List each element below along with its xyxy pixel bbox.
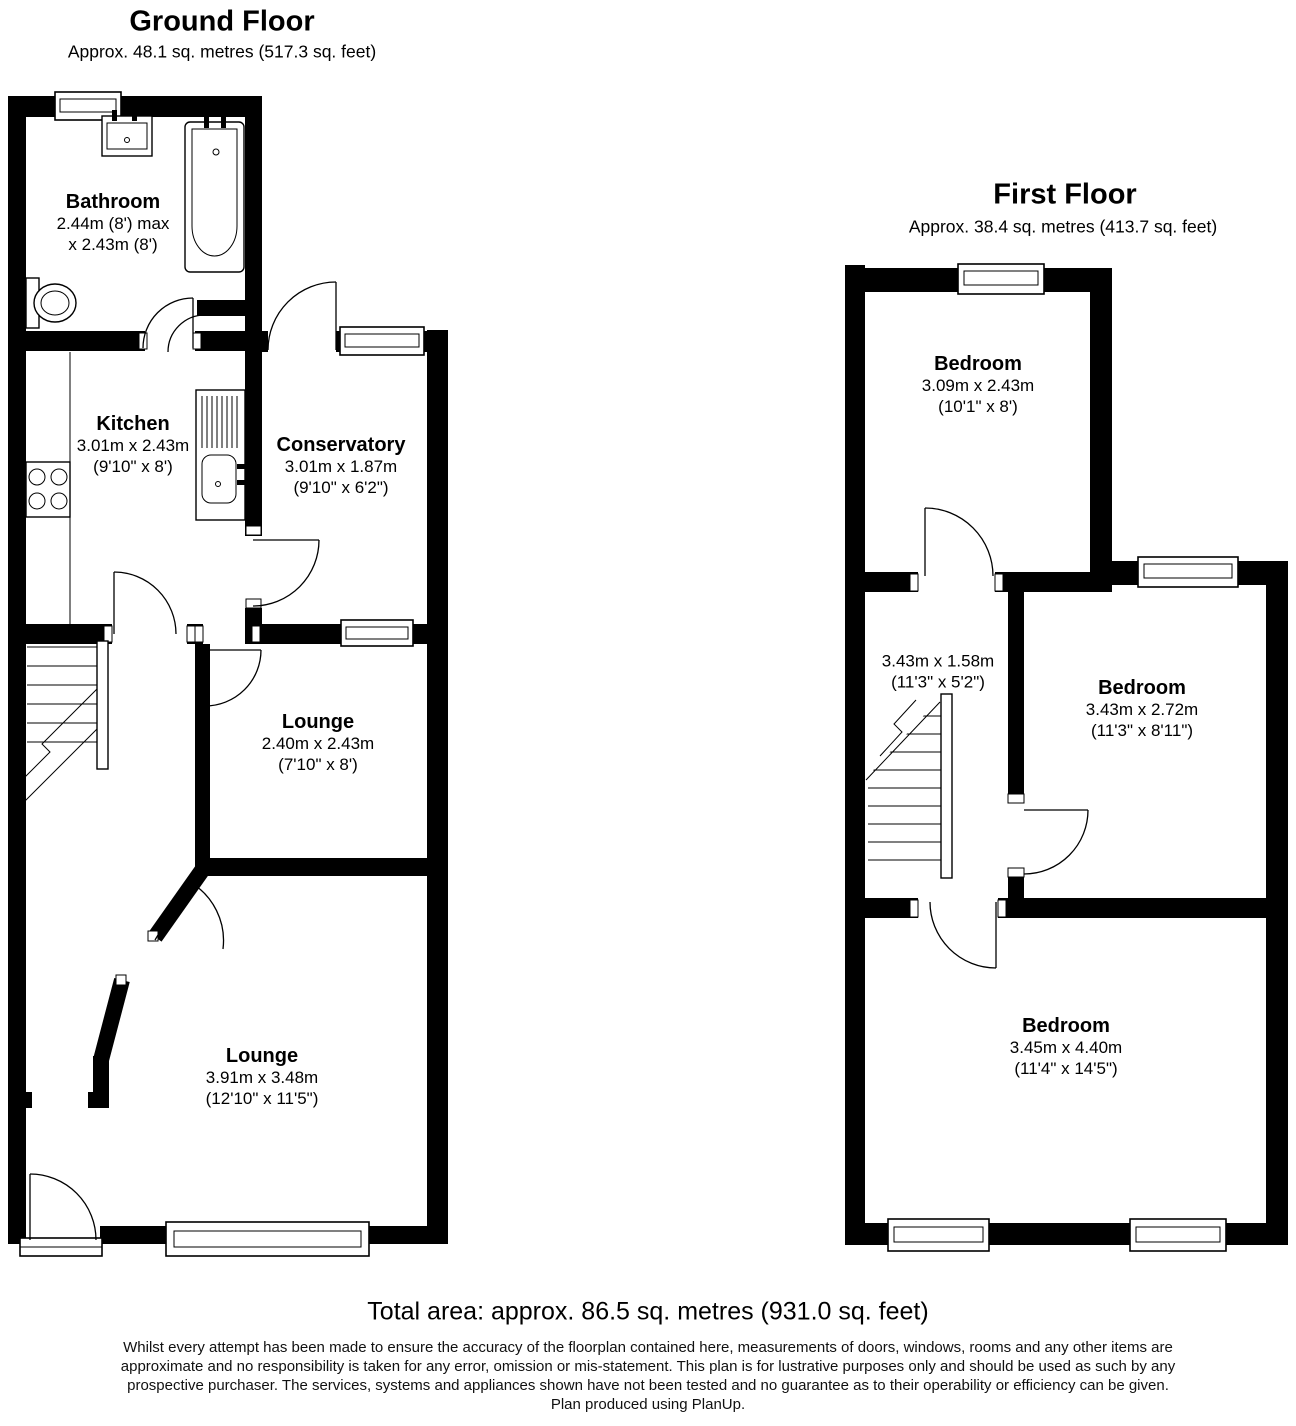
bedroom-back-window-right-icon: [1130, 1219, 1226, 1251]
ff-stairs: [866, 694, 952, 878]
room-name: Bedroom: [1086, 676, 1198, 700]
bedroom-middle-window-icon: [1138, 557, 1238, 587]
floorplan-page: Ground Floor Approx. 48.1 sq. metres (51…: [0, 0, 1296, 1426]
entrance-threshold: [20, 1238, 102, 1256]
room-label-landing: 3.43m x 1.58m (11'3" x 5'2"): [882, 651, 994, 692]
bath-icon: [185, 116, 244, 272]
lounge-window-icon: [166, 1222, 369, 1256]
room-name: Bedroom: [922, 352, 1034, 376]
ground-floor-subtitle: Approx. 48.1 sq. metres (517.3 sq. feet): [68, 42, 376, 63]
room-name: Lounge: [206, 1044, 319, 1068]
bedroom-back-window-left-icon: [888, 1219, 989, 1251]
kitchen-sink-icon: [196, 390, 245, 520]
room-name: Bedroom: [1010, 1014, 1122, 1038]
hob-icon: [26, 352, 70, 624]
kitchen-door-icon: [114, 572, 176, 634]
first-floor-plan: [845, 264, 1288, 1251]
room-label-bathroom: Bathroom 2.44m (8') max x 2.43m (8'): [57, 190, 170, 256]
bedroom-middle-door-icon: [1024, 810, 1088, 874]
room-name: Conservatory: [277, 433, 406, 457]
first-floor-title: First Floor: [993, 179, 1136, 212]
room-name: Bathroom: [57, 190, 170, 214]
disclaimer-text: Whilst every attempt has been made to en…: [0, 1338, 1296, 1414]
room-dims-imperial: (7'10" x 8'): [262, 755, 374, 776]
total-area-text: Total area: approx. 86.5 sq. metres (931…: [367, 1298, 928, 1327]
disclaimer-line-1: Whilst every attempt has been made to en…: [0, 1338, 1296, 1357]
room-dims-metric: 3.45m x 4.40m: [1010, 1038, 1122, 1059]
first-floor-subtitle: Approx. 38.4 sq. metres (413.7 sq. feet): [909, 217, 1217, 238]
room-dims-metric: 2.44m (8') max: [57, 214, 170, 235]
room-label-lounge-small: Lounge 2.40m x 2.43m (7'10" x 8'): [262, 710, 374, 776]
room-dims-metric: 3.01m x 1.87m: [277, 457, 406, 478]
room-name: Lounge: [262, 710, 374, 734]
bedroom-front-door-icon: [925, 508, 993, 576]
disclaimer-line-3: prospective purchaser. The services, sys…: [0, 1376, 1296, 1395]
room-dims-imperial: (11'3" x 8'11"): [1086, 721, 1198, 742]
room-label-bedroom-front: Bedroom 3.09m x 2.43m (10'1" x 8'): [922, 352, 1034, 418]
conservatory-outer-door-icon: [268, 282, 336, 350]
room-dims-metric: 3.09m x 2.43m: [922, 376, 1034, 397]
kitchen-conservatory-door-icon: [253, 540, 319, 606]
entrance-door-icon: [30, 1174, 96, 1240]
room-dims-metric: 3.01m x 2.43m: [77, 436, 189, 457]
room-dims-imperial: x 2.43m (8'): [57, 235, 170, 256]
room-label-lounge-large: Lounge 3.91m x 3.48m (12'10" x 11'5"): [206, 1044, 319, 1110]
disclaimer-line-4: Plan produced using PlanUp.: [0, 1395, 1296, 1414]
toilet-icon: [26, 278, 76, 328]
ff-walls: [845, 265, 1288, 1245]
room-dims-metric: 3.43m x 2.72m: [1086, 700, 1198, 721]
room-dims-imperial: (9'10" x 8'): [77, 457, 189, 478]
room-label-conservatory: Conservatory 3.01m x 1.87m (9'10" x 6'2"…: [277, 433, 406, 499]
conservatory-top-window-icon: [340, 327, 424, 355]
disclaimer-line-2: approximate and no responsibility is tak…: [0, 1357, 1296, 1376]
room-dims-imperial: (9'10" x 6'2"): [277, 478, 406, 499]
room-dims-imperial: (12'10" x 11'5"): [206, 1089, 319, 1110]
room-dims-metric: 3.43m x 1.58m: [882, 651, 994, 672]
room-label-kitchen: Kitchen 3.01m x 2.43m (9'10" x 8'): [77, 412, 189, 478]
room-dims-metric: 3.91m x 3.48m: [206, 1068, 319, 1089]
lounge-small-door-icon: [205, 650, 261, 706]
room-dims-metric: 2.40m x 2.43m: [262, 734, 374, 755]
room-label-bedroom-back: Bedroom 3.45m x 4.40m (11'4" x 14'5"): [1010, 1014, 1122, 1080]
room-dims-imperial: (11'4" x 14'5"): [1010, 1059, 1122, 1080]
conservatory-bottom-window-icon: [341, 620, 413, 646]
ground-floor-title: Ground Floor: [129, 6, 314, 39]
basin-icon: [102, 110, 152, 156]
bedroom-front-window-icon: [958, 264, 1044, 294]
room-dims-imperial: (10'1" x 8'): [922, 397, 1034, 418]
room-dims-imperial: (11'3" x 5'2"): [882, 672, 994, 693]
gf-stairs: [20, 641, 108, 806]
bedroom-back-door-icon: [930, 902, 996, 968]
room-name: Kitchen: [77, 412, 189, 436]
ff-door-jambs: [910, 574, 1024, 917]
room-label-bedroom-middle: Bedroom 3.43m x 2.72m (11'3" x 8'11"): [1086, 676, 1198, 742]
